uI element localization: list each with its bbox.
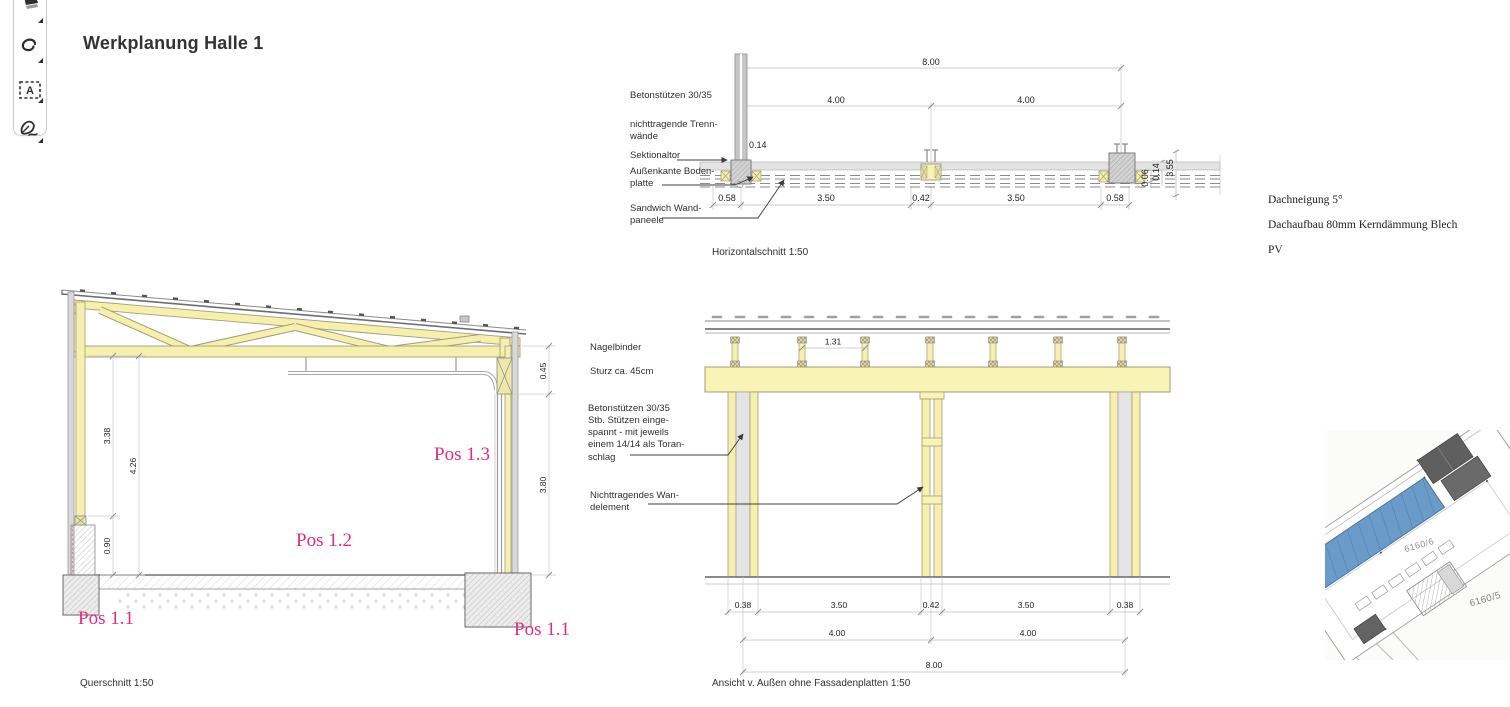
hs-extension-lines — [713, 64, 1220, 210]
hs-label-sektionaltor: Sektionaltor — [630, 150, 680, 162]
note-dachneigung: Dachneigung 5° — [1268, 194, 1343, 206]
note-dachaufbau: Dachaufbau 80mm Kerndämmung Blech — [1268, 219, 1457, 231]
el-column-right — [1110, 392, 1140, 577]
note-pv: PV — [1268, 244, 1283, 256]
el-dim-b1: 4.00 — [829, 628, 846, 638]
el-column-left — [728, 392, 758, 577]
highlighter-icon[interactable] — [16, 0, 44, 25]
cs-dim-h1: 3.38 — [102, 427, 112, 444]
svg-text:A: A — [26, 85, 34, 97]
cross-section-drawing: 3.38 0.90 4.26 0.45 3.80 — [60, 280, 590, 700]
hs-dim-s3: 3.55 — [1165, 159, 1175, 177]
drawing-sheet: A Werkplanung Halle 1 — [0, 0, 1510, 707]
cs-caption: Querschnitt 1:50 — [80, 678, 153, 689]
hs-caption: Horizontalschnitt 1:50 — [712, 247, 808, 258]
hs-dim-bay1: 4.00 — [827, 95, 845, 105]
pos-label-1-2: Pos 1.2 — [296, 530, 352, 552]
el-lintel-band — [705, 367, 1170, 392]
el-label-sturz: Sturz ca. 45cm — [590, 366, 653, 378]
cs-left-wall — [68, 292, 95, 575]
cs-door-track — [288, 357, 498, 390]
hs-dim-s2: 0.14 — [1151, 163, 1161, 181]
hs-dim-wall: 0.14 — [749, 140, 767, 150]
cs-floor-slab — [95, 575, 507, 589]
text-select-icon[interactable]: A — [16, 75, 44, 105]
cs-dim-h5: 3.80 — [538, 476, 548, 493]
hs-label-betonstuetzen: Betonstützen 30/35 — [630, 90, 712, 102]
el-roof-edge — [705, 317, 1170, 333]
hs-dim-c1: 0.58 — [718, 193, 736, 203]
el-caption: Ansicht v. Außen ohne Fassadenplatten 1:… — [712, 678, 910, 689]
el-dim-c3: 0.42 — [923, 600, 940, 610]
el-truss-posts — [731, 337, 1127, 367]
el-dim-c5: 0.38 — [1117, 600, 1134, 610]
el-label-betonstuetzen: Betonstützen 30/35 Stb. Stützen einge- s… — [588, 403, 708, 464]
hs-dim-s1: 0.06 — [1140, 169, 1150, 187]
el-dim-c4: 3.50 — [1018, 600, 1035, 610]
lasso-icon[interactable] — [16, 35, 44, 65]
el-dim-total: 8.00 — [926, 660, 943, 670]
el-dim-b2: 4.00 — [1020, 628, 1037, 638]
hs-dim-c2: 3.50 — [817, 193, 835, 203]
cs-dim-h4: 0.45 — [538, 362, 548, 379]
pos-label-1-1-right: Pos 1.1 — [514, 619, 570, 641]
annotation-toolbar: A — [13, 0, 47, 136]
cs-right-wall — [495, 332, 518, 575]
signature-pen-icon[interactable] — [16, 115, 44, 145]
page-title: Werkplanung Halle 1 — [83, 33, 264, 54]
el-wall-element-middle — [920, 392, 944, 577]
hs-dim-c3: 0.42 — [912, 193, 930, 203]
el-dim-spacing: 1.31 — [825, 337, 842, 347]
site-plan: 6160/6 6160/5 — [1325, 430, 1510, 660]
cs-gravel-layer — [118, 590, 468, 611]
el-label-wandelement: Nichttragendes Wan- delement — [590, 490, 679, 514]
cs-dim-h2: 4.26 — [128, 457, 138, 474]
hs-dim-bay2: 4.00 — [1017, 95, 1035, 105]
hs-partition-wall — [735, 54, 747, 164]
hs-label-aussenkante: Außenkante Boden- platte — [630, 166, 715, 190]
pos-label-1-3: Pos 1.3 — [434, 444, 490, 466]
hs-dim-total: 8.00 — [922, 57, 940, 67]
el-dim-c1: 0.38 — [735, 600, 752, 610]
hs-label-trennwaende: nichttragende Trenn- wände — [630, 119, 718, 143]
hs-dim-c5: 0.58 — [1106, 193, 1124, 203]
horizontal-section-drawing: 8.00 4.00 4.00 0.14 0.58 3.50 0.42 3.50 … — [600, 50, 1240, 265]
pos-label-1-1-left: Pos 1.1 — [78, 608, 134, 630]
el-label-nagelbinder: Nagelbinder — [590, 342, 641, 354]
hs-label-sandwich: Sandwich Wand- paneele — [630, 203, 701, 227]
el-dim-c2: 3.50 — [831, 600, 848, 610]
hs-dim-c4: 3.50 — [1007, 193, 1025, 203]
hs-dimension-lines — [713, 68, 1176, 205]
cs-dim-h3: 0.90 — [102, 537, 112, 554]
